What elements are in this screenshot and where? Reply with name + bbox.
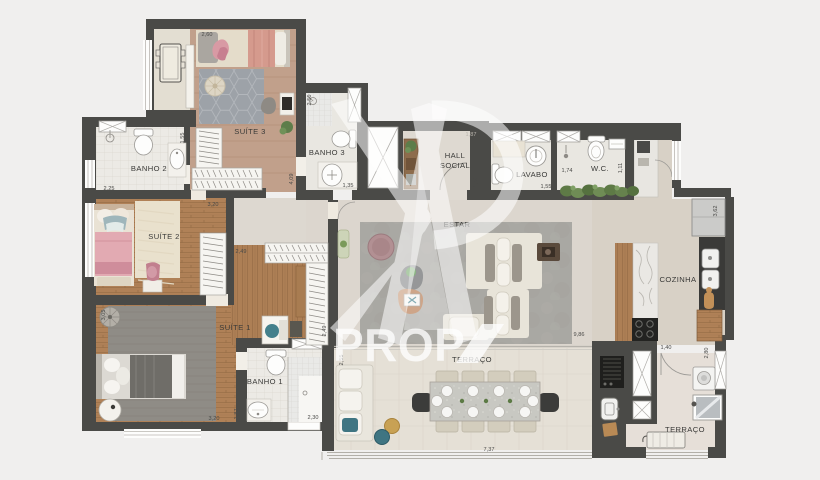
svg-text:3,20: 3,20 — [209, 416, 220, 422]
svg-text:2,60: 2,60 — [202, 32, 213, 38]
svg-text:4,09: 4,09 — [289, 174, 295, 185]
svg-text:1,87: 1,87 — [466, 132, 477, 138]
svg-text:2,49: 2,49 — [236, 249, 247, 255]
svg-text:3,20: 3,20 — [208, 202, 219, 208]
svg-text:BANHO 1: BANHO 1 — [247, 377, 283, 386]
svg-text:SOCIAL: SOCIAL — [440, 161, 470, 170]
svg-text:COZINHA: COZINHA — [660, 275, 698, 284]
svg-text:SUÍTE 1: SUÍTE 1 — [219, 323, 251, 332]
svg-text:W.C.: W.C. — [591, 164, 609, 173]
svg-text:BANHO 3: BANHO 3 — [309, 148, 345, 157]
svg-text:TERRAÇO: TERRAÇO — [665, 425, 705, 434]
svg-text:1,50: 1,50 — [473, 177, 479, 188]
svg-text:2,49: 2,49 — [322, 326, 328, 337]
svg-text:7,37: 7,37 — [484, 447, 495, 453]
svg-text:1,74: 1,74 — [562, 168, 573, 174]
svg-text:2,50: 2,50 — [307, 95, 313, 106]
svg-text:1,11: 1,11 — [618, 163, 624, 173]
svg-text:2,80: 2,80 — [704, 348, 710, 359]
svg-text:1,40: 1,40 — [661, 345, 672, 351]
svg-text:BANHO 2: BANHO 2 — [131, 164, 167, 173]
svg-text:PROP: PROP — [333, 319, 465, 371]
svg-text:3,62: 3,62 — [713, 206, 719, 217]
svg-text:1,55: 1,55 — [180, 133, 186, 144]
svg-text:1,55: 1,55 — [541, 184, 552, 190]
svg-text:SUÍTE 3: SUÍTE 3 — [234, 127, 266, 136]
svg-text:2,30: 2,30 — [308, 415, 319, 421]
svg-text:HALL: HALL — [445, 151, 466, 160]
svg-text:9,86: 9,86 — [574, 332, 585, 338]
svg-text:SUÍTE 2: SUÍTE 2 — [148, 232, 180, 241]
svg-text:2,25: 2,25 — [104, 186, 115, 192]
svg-text:3,05: 3,05 — [101, 310, 107, 321]
svg-text:1,35: 1,35 — [343, 183, 354, 189]
svg-text:1,87: 1,87 — [234, 409, 240, 420]
